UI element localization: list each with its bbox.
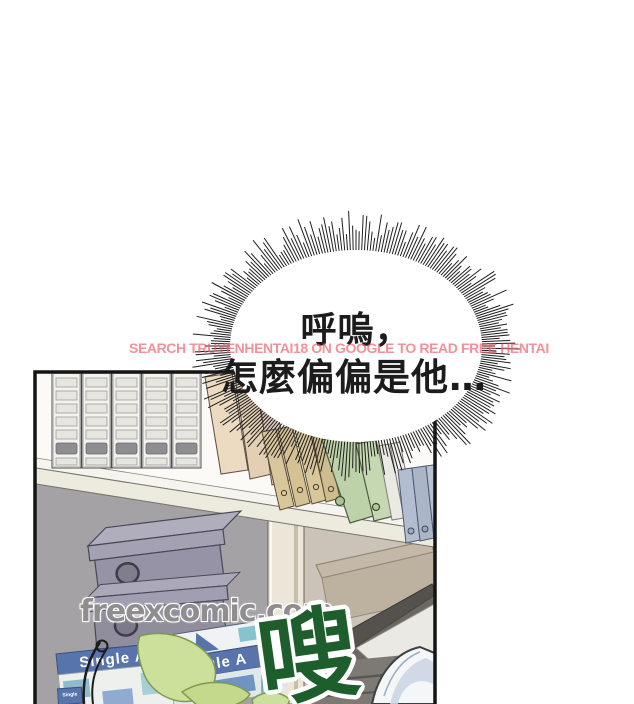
comic-page: ingle A Single A Single [0, 0, 634, 704]
watermark-banner: SEARCH TRUYENHENTAI18 ON GOOGLE TO READ … [129, 340, 549, 356]
bubble-text-line2: 怎麼偏偏是他… [221, 356, 487, 399]
